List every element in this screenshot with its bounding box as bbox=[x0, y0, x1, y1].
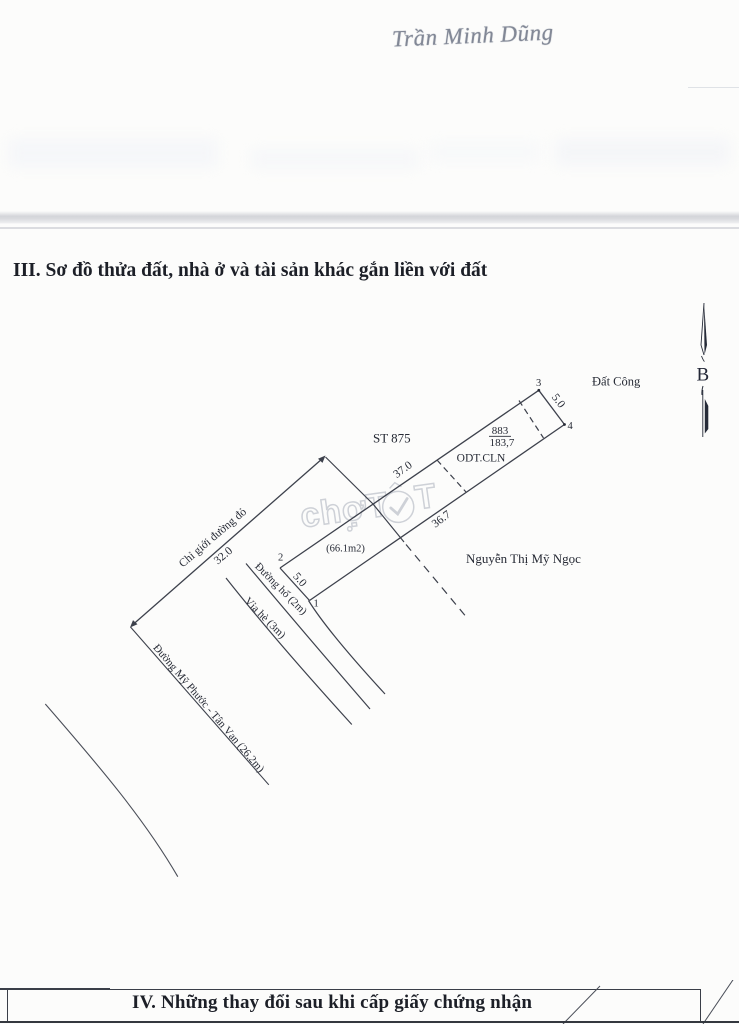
svg-text:Vỉa hè (3m): Vỉa hè (3m) bbox=[242, 595, 288, 641]
svg-text:ODT.CLN: ODT.CLN bbox=[457, 453, 506, 465]
svg-text:32.0: 32.0 bbox=[212, 545, 235, 567]
svg-text:(66.1m2): (66.1m2) bbox=[326, 544, 365, 555]
svg-text:1: 1 bbox=[314, 599, 319, 610]
svg-text:183,7: 183,7 bbox=[490, 437, 515, 449]
svg-text:4: 4 bbox=[568, 421, 574, 432]
svg-text:Đường Mỹ Phước - Tân Vạn (26.2: Đường Mỹ Phước - Tân Vạn (26.2m) bbox=[150, 642, 266, 775]
svg-text:5.0: 5.0 bbox=[290, 571, 309, 590]
svg-text:Nguyễn Thị Mỹ Ngọc: Nguyễn Thị Mỹ Ngọc bbox=[466, 551, 581, 566]
svg-text:T: T bbox=[413, 477, 439, 518]
svg-text:B: B bbox=[697, 365, 710, 386]
svg-text:ST 875: ST 875 bbox=[373, 431, 411, 446]
svg-text:2: 2 bbox=[278, 553, 283, 564]
svg-text:Đất Công: Đất Công bbox=[592, 375, 641, 389]
svg-text:chợT: chợT bbox=[298, 485, 391, 535]
svg-text:3: 3 bbox=[536, 378, 541, 389]
svg-text:883: 883 bbox=[492, 425, 509, 437]
